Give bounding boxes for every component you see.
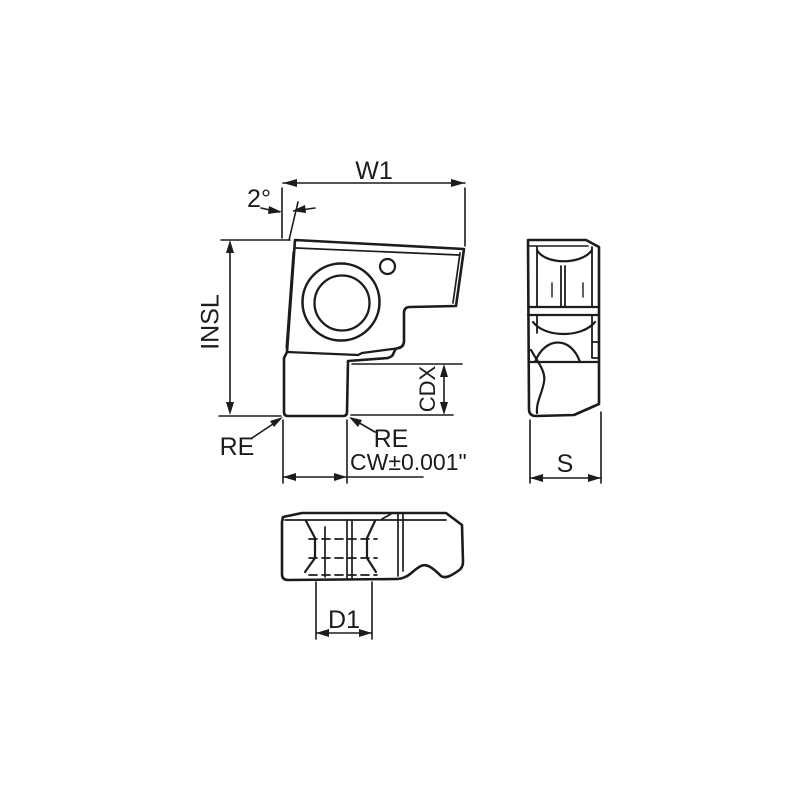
dimension-s: S bbox=[530, 412, 601, 483]
front-seat-edge-line bbox=[287, 348, 400, 355]
front-top-chamfer-line bbox=[296, 248, 459, 255]
dimension-insl: INSL bbox=[197, 240, 290, 416]
side-relief-s-curve bbox=[531, 350, 544, 413]
cdx-arrow-bottom bbox=[440, 402, 448, 415]
insl-arrow-top bbox=[226, 240, 234, 253]
cw-arrow-left bbox=[283, 473, 296, 481]
bottom-view bbox=[282, 513, 463, 580]
w1-arrow-left bbox=[283, 179, 297, 187]
s-arrow-right bbox=[588, 474, 601, 482]
dimension-label-cw: CW±0.001" bbox=[350, 449, 467, 475]
cw-arrow-right bbox=[334, 473, 347, 481]
side-view bbox=[528, 240, 599, 416]
dimension-d1: D1 bbox=[316, 582, 372, 639]
cdx-arrow-top bbox=[440, 364, 448, 377]
dimension-label-re-left: RE bbox=[220, 433, 255, 461]
dimension-angle: 2° bbox=[247, 185, 315, 240]
side-mid-groove-curve bbox=[533, 322, 595, 334]
d1-arrow-right bbox=[359, 629, 372, 637]
dimension-w1: W1 bbox=[282, 157, 465, 246]
bottom-view-outline bbox=[282, 513, 463, 580]
side-dome-curve bbox=[535, 343, 580, 363]
dimension-label-s: S bbox=[557, 450, 574, 478]
dimension-label-d1: D1 bbox=[328, 606, 360, 634]
re-right-arrow bbox=[349, 417, 362, 427]
dimension-label-insl: INSL bbox=[197, 294, 225, 350]
drawing-page: W1 2° INSL CDX bbox=[0, 0, 800, 800]
w1-arrow-right bbox=[451, 179, 465, 187]
dimension-cdx: CDX bbox=[351, 364, 462, 415]
bottom-flank-left bbox=[305, 521, 315, 572]
screw-hole-inner-circle bbox=[315, 276, 370, 331]
side-top-groove-curve bbox=[537, 250, 592, 261]
dimension-re-left: RE bbox=[220, 417, 283, 461]
bottom-flank-right bbox=[367, 521, 376, 572]
dimension-label-w1: W1 bbox=[355, 157, 393, 185]
angle-arrow-right bbox=[292, 205, 306, 213]
bottom-right-diagonal bbox=[382, 514, 391, 519]
engineering-drawing: W1 2° INSL CDX bbox=[0, 0, 800, 800]
dimension-re-right: RE bbox=[349, 417, 408, 453]
small-hole-circle bbox=[380, 259, 395, 274]
dimension-label-angle: 2° bbox=[247, 185, 271, 213]
dimension-label-cdx: CDX bbox=[415, 365, 440, 412]
insl-arrow-bottom bbox=[226, 402, 234, 415]
s-arrow-left bbox=[530, 474, 543, 482]
